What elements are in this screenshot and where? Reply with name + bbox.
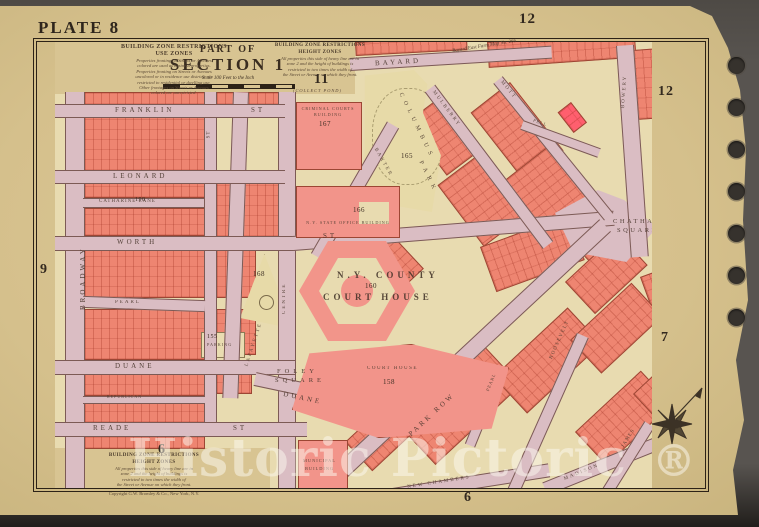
copyright-line: Copyright G.W. Bromley & Co., New York, … [66, 491, 242, 496]
number-160: 160 [365, 282, 377, 290]
city-block [558, 102, 587, 133]
collect-pond-annotation: (COLLECT POND) [293, 88, 342, 93]
margin-number-top: 12 [519, 11, 536, 28]
margin-number-9: 9 [40, 262, 48, 278]
margin-number-11: 11 [314, 72, 329, 88]
plate-label: PLATE 8 [38, 18, 120, 38]
use-zones-heading2: USE ZONES [88, 51, 260, 58]
label-state-office: N.Y. STATE OFFICE BUILDING [301, 220, 395, 225]
city-block [84, 309, 205, 360]
number-190: 190 [135, 197, 146, 203]
street-worth [55, 236, 295, 251]
label-centre: CENTRE [282, 283, 287, 314]
label-catharine-lane: CATHARINE LANE [99, 199, 156, 204]
binder-hole [728, 267, 745, 284]
number-166: 166 [353, 206, 365, 214]
registered-mark-icon: ® [652, 436, 697, 487]
label-franklin-st: ST [251, 106, 265, 114]
margin-number-7: 7 [661, 330, 669, 346]
height-zones-top-heading1: BUILDING ZONE RESTRICTIONS [256, 42, 384, 49]
label-chatham-1: CHATHAM [613, 218, 652, 225]
label-pearl-west: PEARL [115, 300, 141, 305]
street-elm [204, 92, 217, 434]
watermark-label: Historic Pictoric [128, 428, 627, 489]
binder-hole [728, 183, 745, 200]
binder-hole [728, 141, 745, 158]
label-county-court-1: N.Y. COUNTY [337, 270, 439, 280]
label-duane: DUANE [115, 362, 155, 370]
use-zones-line: colored are unrestricted. [88, 90, 260, 95]
use-zones-heading1: BUILDING ZONE RESTRICTIONS [88, 44, 260, 51]
binder-hole [728, 57, 745, 74]
label-parking: PARKING [207, 342, 232, 347]
margin-number-12: 12 [658, 84, 674, 100]
label-criminal-courts-2: BUILDING [301, 112, 355, 117]
state-office-building [296, 186, 400, 238]
height-zones-top-heading2: HEIGHT ZONES [256, 49, 384, 56]
label-reade: READE [93, 424, 131, 432]
street-republican-alley [83, 396, 205, 404]
number-155: 155 [207, 334, 218, 340]
watermark-text: Historic Pictoric ® [128, 428, 697, 489]
margin-number-6-bottom: 6 [464, 490, 472, 506]
city-block [84, 403, 205, 423]
label-leonard: LEONARD [113, 172, 167, 180]
label-republican: REPUBLICAN [107, 394, 142, 399]
number-168: 168 [253, 270, 265, 278]
binder-hole [728, 99, 745, 116]
label-foley-1: FOLEY [277, 368, 318, 375]
city-block [84, 117, 205, 171]
label-foley-2: SQUARE [275, 377, 325, 384]
label-county-court-2: COURT HOUSE [323, 292, 433, 302]
label-court-house-158: COURT HOUSE [367, 366, 418, 371]
city-block [84, 250, 205, 298]
city-block [84, 208, 205, 236]
label-criminal-courts-1: CRIMINAL COURTS [301, 106, 355, 111]
binder-hole [728, 309, 745, 326]
label-chatham-2: SQUARE [617, 227, 652, 234]
label-elm-st: ST [206, 131, 211, 139]
city-block [216, 182, 279, 237]
number-165: 165 [401, 152, 413, 160]
city-block [84, 374, 205, 396]
use-zones-note: BUILDING ZONE RESTRICTIONS USE ZONES Pro… [88, 44, 260, 96]
label-franklin: FRANKLIN [115, 106, 174, 114]
binder-hole [728, 225, 745, 242]
court-house-courtyard-ring [319, 258, 395, 324]
fountain-circle [259, 295, 274, 310]
atlas-photo: PLATE 8 12 [0, 0, 759, 527]
number-167: 167 [319, 120, 331, 128]
label-worth-st: ST [323, 232, 337, 240]
label-broadway: BROADWAY [79, 246, 87, 310]
map-content: BROADWAY ST LAFAYETTE CENTRE BOWERY FRAN… [55, 42, 652, 488]
label-worth: WORTH [117, 238, 157, 246]
street-leonard [55, 170, 285, 184]
number-158: 158 [383, 378, 395, 386]
city-block [84, 182, 205, 198]
